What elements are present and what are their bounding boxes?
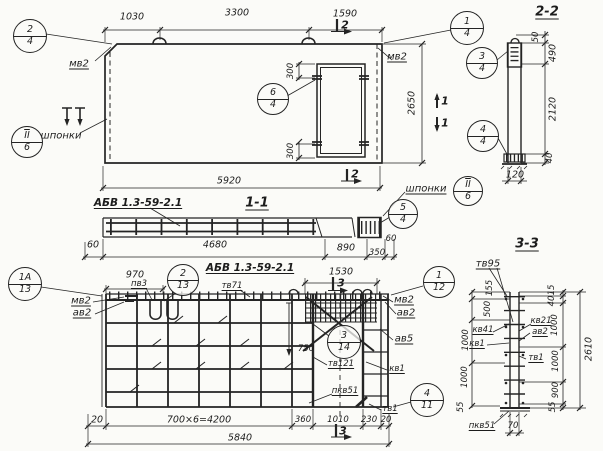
dim-1010: 1010: [327, 415, 349, 425]
callout-4-11: 4 11: [410, 383, 444, 417]
label-tv95: тв95: [476, 259, 500, 270]
label-mv2-plan-right: мв2: [387, 52, 407, 63]
dim-890: 890: [337, 243, 355, 254]
drawing-linework: [0, 0, 603, 451]
dim-5840: 5840: [228, 433, 252, 444]
dim-1000-right-b: 1000: [551, 350, 561, 372]
callout-3-4: 3 4: [466, 47, 498, 79]
dim-350: 350: [369, 248, 385, 258]
dim-700x6: 700×6=4200: [167, 415, 231, 426]
callout-num: 2: [168, 269, 198, 281]
dim-70: 70: [508, 421, 519, 431]
label-tv121: тв121: [328, 359, 354, 369]
drawing-sheet: 1030 3300 1590 2 2 5920 2650 300 300 мв2…: [0, 0, 603, 451]
dim-360: 360: [295, 415, 311, 425]
label-mv2-plan-left: мв2: [69, 59, 89, 70]
label-tv71: тв71: [222, 281, 243, 291]
title-section-3-3: 3-3: [515, 237, 539, 252]
dim-15: 15: [547, 285, 557, 296]
section-2-2-linework: [497, 31, 549, 184]
dim-55-right: 55: [548, 402, 558, 413]
dim-60-left: 60: [87, 240, 99, 251]
label-panel-mark-1-1: АБВ 1.3-59-2.1: [94, 197, 182, 209]
section-cut-2-top-label: 2: [341, 19, 349, 32]
callout-2-13: 2 13: [167, 264, 199, 296]
callout-1-12: 1 12: [423, 266, 455, 298]
callout-num: 1: [424, 271, 454, 283]
callout-num: 4: [411, 389, 443, 401]
dim-300-top: 300: [286, 63, 296, 79]
label-kv41: кв41: [473, 325, 494, 335]
dim-20-right: 20: [381, 415, 392, 425]
callout-den: 4: [389, 215, 417, 226]
label-kv1-rplan: кв1: [389, 364, 405, 374]
dim-750: 750: [298, 344, 314, 354]
label-av2-rplan-right: ав2: [397, 308, 415, 319]
callout-5-4: 5 4: [388, 199, 418, 229]
callout-den: 11: [411, 401, 443, 412]
dim-490: 490: [548, 44, 559, 62]
callout-den: 6: [454, 192, 482, 203]
dim-500: 500: [483, 301, 493, 317]
label-av5: ав5: [395, 334, 413, 345]
callout-num: II: [12, 131, 42, 143]
label-shponki-left: шпонки: [41, 131, 82, 142]
label-pv3: пв3: [131, 279, 147, 289]
callout-6-4: 6 4: [257, 83, 289, 115]
dim-1000-right-a: 1000: [550, 314, 560, 336]
callout-den: 14: [328, 343, 360, 354]
callout-num: 2: [14, 25, 46, 37]
section-cut-3-top-label: 3: [337, 277, 345, 290]
plan-view-linework: [46, 19, 451, 191]
dim-3300: 3300: [225, 8, 249, 19]
title-section-2-2: 2-2: [535, 5, 559, 20]
dim-40: 40: [545, 153, 555, 164]
label-mv2-rplan-right: мв2: [394, 295, 414, 306]
title-reinforcement-plan: АБВ 1.3-59-2.1: [206, 262, 294, 274]
callout-num: 1А: [9, 273, 41, 285]
callout-den: 13: [9, 285, 41, 296]
dim-20-left: 20: [91, 415, 103, 426]
dim-155: 155: [485, 280, 495, 296]
callout-4-4: 4 4: [467, 120, 499, 152]
callout-num: 3: [467, 52, 497, 64]
label-pkv51-rplan: пкв51: [332, 386, 359, 396]
callout-1-4: 1 4: [450, 11, 484, 45]
dim-55-left: 55: [456, 402, 466, 413]
label-av2-33: ав2: [532, 327, 548, 337]
dim-4680: 4680: [203, 240, 227, 251]
dim-2650: 2650: [407, 91, 418, 115]
dim-230: 230: [361, 415, 377, 425]
callout-den: 12: [424, 283, 454, 294]
label-pkv51-33: пкв51: [469, 421, 496, 431]
callout-num: II: [454, 180, 482, 192]
dim-1030: 1030: [120, 12, 144, 23]
callout-num: 6: [258, 88, 288, 100]
callout-den: 13: [168, 281, 198, 292]
callout-num: 1: [451, 17, 483, 29]
label-tv1-rplan: тв1: [382, 404, 397, 414]
section-cut-3-bottom-label: 3: [339, 425, 347, 438]
section-cut-1-upper-label: 1: [441, 95, 449, 108]
dim-2610: 2610: [584, 337, 595, 361]
dim-2120: 2120: [548, 97, 559, 121]
label-kv1-33: кв1: [469, 339, 485, 349]
dim-1000-left-b: 1000: [460, 366, 470, 388]
dim-120: 120: [506, 170, 524, 181]
dim-900: 900: [551, 382, 561, 398]
title-section-1-1: 1-1: [245, 196, 269, 211]
callout-1a-13: 1А 13: [8, 267, 42, 301]
callout-key-left: II 6: [11, 126, 43, 158]
section-cut-1-lower-label: 1: [441, 117, 449, 130]
callout-den: 4: [14, 37, 46, 48]
section-3-3-dots: [505, 298, 525, 405]
callout-den: 6: [12, 143, 42, 154]
dim-5920: 5920: [217, 176, 241, 187]
callout-num: 5: [389, 203, 417, 215]
label-mv2-rplan-left: мв2: [71, 296, 91, 307]
plan-arrowheads: [64, 29, 439, 185]
dim-60-right: 60: [386, 234, 397, 244]
callout-den: 4: [451, 29, 483, 40]
label-tv1-33: тв1: [528, 353, 543, 363]
section-cut-2-bottom-label: 2: [351, 168, 359, 181]
dim-40-33: 40: [547, 296, 557, 307]
callout-den: 4: [467, 64, 497, 75]
callout-2-4: 2 4: [13, 19, 47, 53]
callout-num: 4: [468, 125, 498, 137]
callout-den: 4: [258, 100, 288, 111]
label-kv21: кв21: [531, 316, 552, 326]
dim-50: 50: [531, 32, 541, 43]
label-shponki-right: шпонки: [406, 184, 447, 195]
callout-key-right: II 6: [453, 176, 483, 206]
dim-300-bottom: 300: [286, 143, 296, 159]
callout-den: 4: [468, 137, 498, 148]
callout-3-14: 3 14: [327, 325, 361, 359]
label-av2-rplan-left: ав2: [73, 308, 91, 319]
callout-num: 3: [328, 331, 360, 343]
